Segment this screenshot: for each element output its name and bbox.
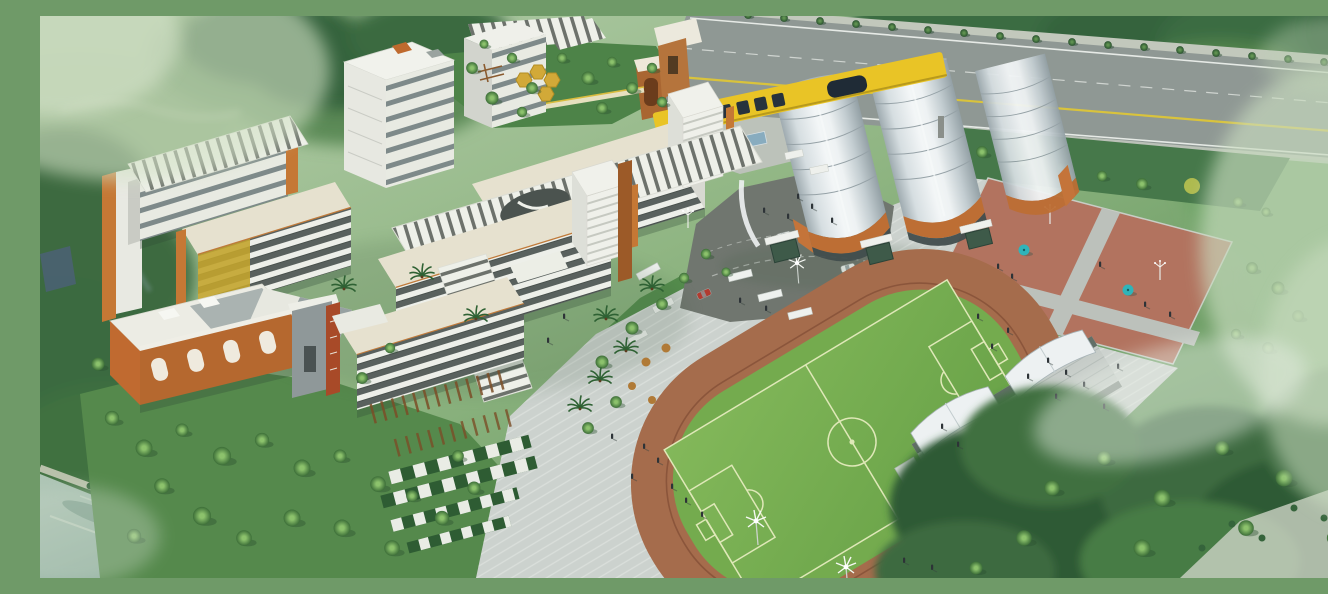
orange-pylon	[102, 172, 116, 322]
small-blue-roof	[40, 246, 76, 292]
campus-aerial-rendering: Aerial bird's-eye rendering of a school …	[40, 16, 1328, 578]
yellow-tree	[1184, 178, 1200, 194]
brown-fin-tower	[618, 160, 632, 282]
glass-tower	[344, 42, 454, 188]
scene-canvas: Aerial bird's-eye rendering of a school …	[40, 16, 1328, 578]
